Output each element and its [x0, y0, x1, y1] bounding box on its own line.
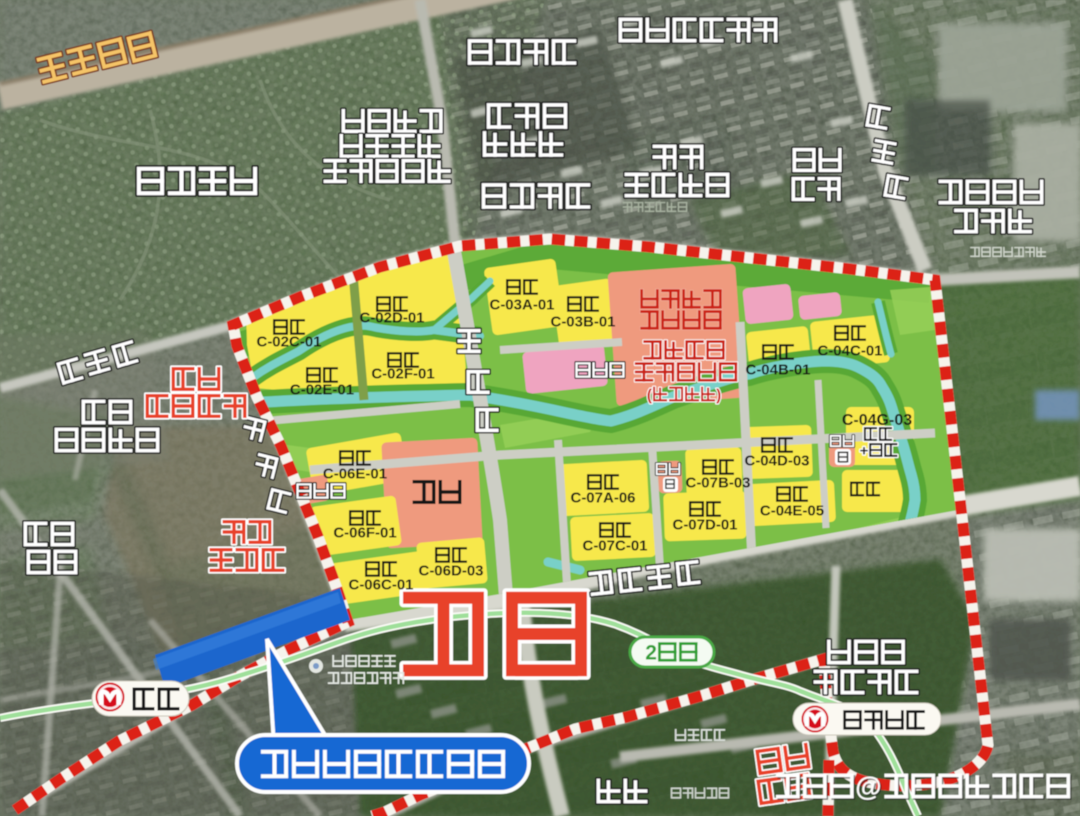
svg-text:C-06C-01: C-06C-01	[348, 576, 413, 593]
svg-text:C-02D-01: C-02D-01	[359, 309, 424, 326]
svg-text:C-06E-01: C-06E-01	[323, 465, 387, 482]
svg-text:+: +	[860, 442, 869, 459]
svg-text:C-04B-01: C-04B-01	[745, 361, 810, 378]
svg-text:C-02F-01: C-02F-01	[371, 365, 434, 382]
svg-text:2: 2	[645, 642, 657, 665]
svg-text:C-07C-01: C-07C-01	[582, 537, 647, 554]
svg-text:C-07D-01: C-07D-01	[672, 516, 737, 533]
svg-text:): )	[716, 387, 721, 404]
svg-text:C-02E-01: C-02E-01	[290, 381, 354, 398]
svg-text:C-04D-03: C-04D-03	[744, 452, 809, 469]
svg-text:C-06F-01: C-06F-01	[333, 524, 396, 541]
svg-text:C-03B-01: C-03B-01	[550, 313, 615, 330]
svg-text:C-02C-01: C-02C-01	[256, 333, 321, 350]
svg-text:C-04E-05: C-04E-05	[760, 502, 824, 519]
svg-text:C-06D-03: C-06D-03	[418, 562, 483, 579]
svg-text:C-07B-03: C-07B-03	[685, 474, 750, 491]
svg-text:@: @	[855, 772, 881, 802]
svg-text:C-03A-01: C-03A-01	[489, 296, 554, 313]
svg-text:C-04C-01: C-04C-01	[817, 342, 882, 359]
svg-text:C-07A-06: C-07A-06	[570, 489, 635, 506]
svg-text:(: (	[647, 387, 653, 404]
